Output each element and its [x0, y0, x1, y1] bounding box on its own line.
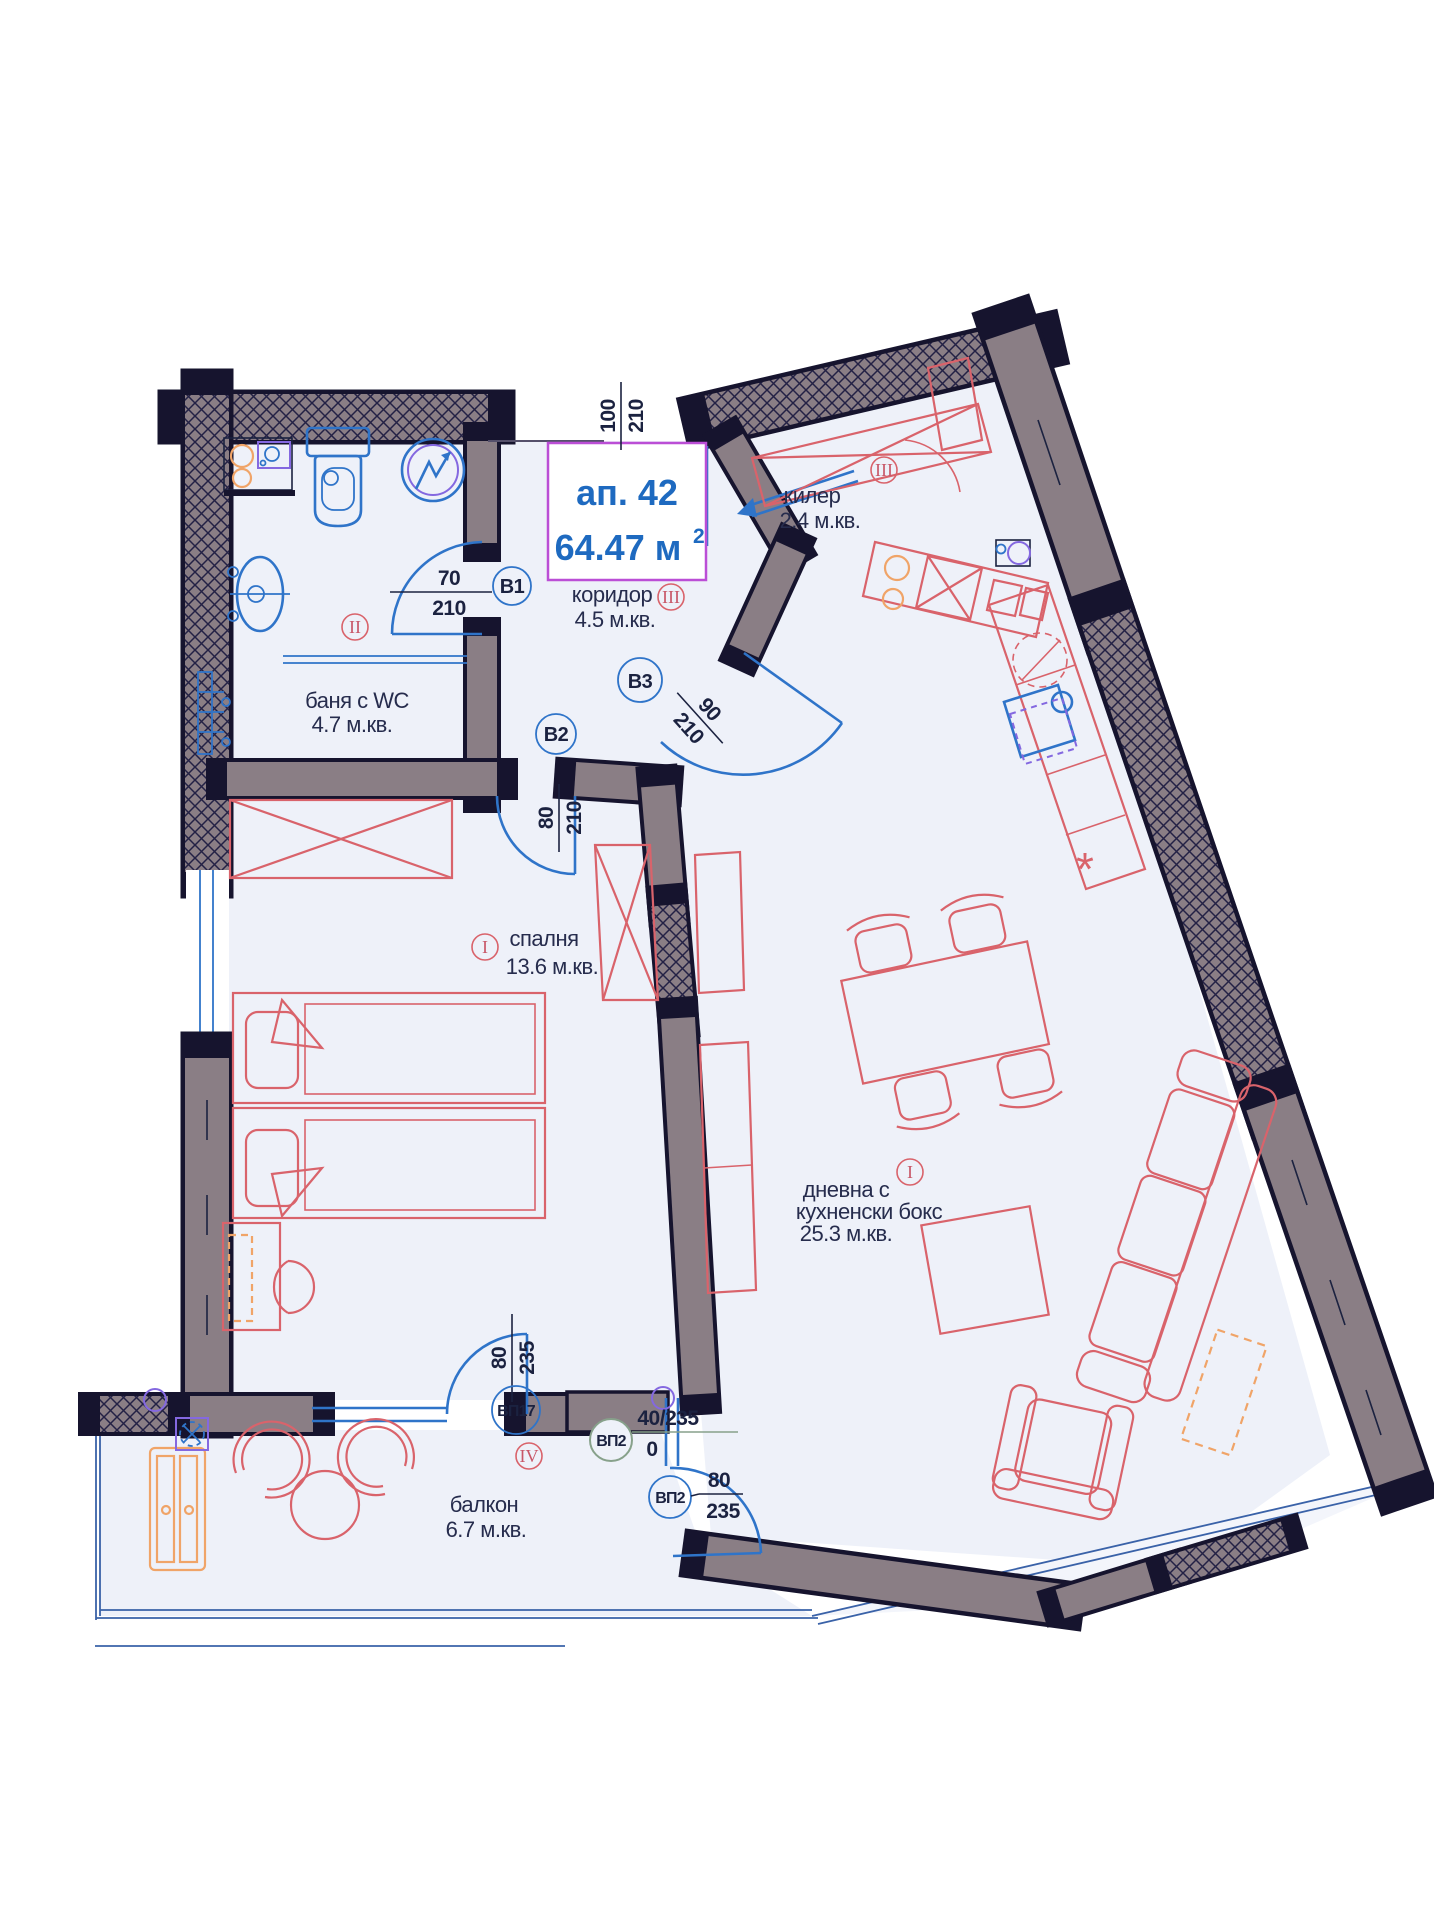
- b1-width: 70: [438, 567, 460, 590]
- vp17-label: ВП17: [497, 1403, 536, 1420]
- bedroom-numeral: I: [482, 937, 488, 957]
- kiler-numeral: III: [875, 460, 893, 480]
- vp2b-width: 80: [708, 1469, 730, 1492]
- apartment-area-sup: 2: [693, 525, 705, 548]
- b3-label: B3: [628, 671, 653, 693]
- balcony-numeral: IV: [520, 1446, 539, 1466]
- bath-name: баня с WC: [305, 688, 409, 713]
- bedroom-area: 13.6 м.кв.: [506, 954, 599, 979]
- living-area: 25.3 м.кв.: [800, 1221, 893, 1246]
- b2-height: 210: [563, 801, 586, 835]
- entry-width: 100: [597, 399, 620, 433]
- b1-height: 210: [432, 597, 466, 620]
- bath-area: 4.7 м.кв.: [312, 712, 393, 737]
- balcony-name: балкон: [450, 1492, 518, 1517]
- wall-central-c: [678, 1018, 700, 1394]
- corridor-name: коридор: [572, 582, 653, 607]
- vp2a-dim: 40/235: [637, 1407, 699, 1430]
- b2-width: 80: [535, 807, 558, 829]
- floor-plan-page: *: [0, 0, 1434, 1920]
- corridor-area: 4.5 м.кв.: [575, 607, 656, 632]
- door-tag-entry: 100 210: [597, 382, 648, 450]
- b1-label: B1: [500, 576, 525, 598]
- vp17-height: 235: [516, 1340, 539, 1374]
- balcony-area: 6.7 м.кв.: [446, 1517, 527, 1542]
- kiler-area: 2.4 м.кв.: [780, 508, 861, 533]
- vp17-width: 80: [488, 1347, 511, 1369]
- living-numeral: I: [907, 1162, 913, 1182]
- apartment-area: 64.47 м: [555, 527, 682, 568]
- floor-plan-drawing: *: [0, 0, 1434, 1920]
- bedroom-name: спалня: [509, 926, 578, 951]
- kiler-name: килер: [784, 483, 841, 508]
- vp2a-label: ВП2: [596, 1433, 626, 1450]
- b2-label: B2: [544, 724, 569, 746]
- bath-numeral: II: [349, 617, 361, 637]
- vp2a-extra: 0: [646, 1438, 657, 1461]
- vp2b-label: ВП2: [655, 1490, 685, 1507]
- apartment-number: ап. 42: [576, 472, 678, 513]
- corridor-numeral: III: [662, 587, 680, 607]
- vp2b-height: 235: [706, 1500, 740, 1523]
- fridge-asterisk: *: [1076, 843, 1094, 895]
- title-box: ап. 42 64.47 м 2: [548, 443, 706, 580]
- entry-height: 210: [625, 399, 648, 433]
